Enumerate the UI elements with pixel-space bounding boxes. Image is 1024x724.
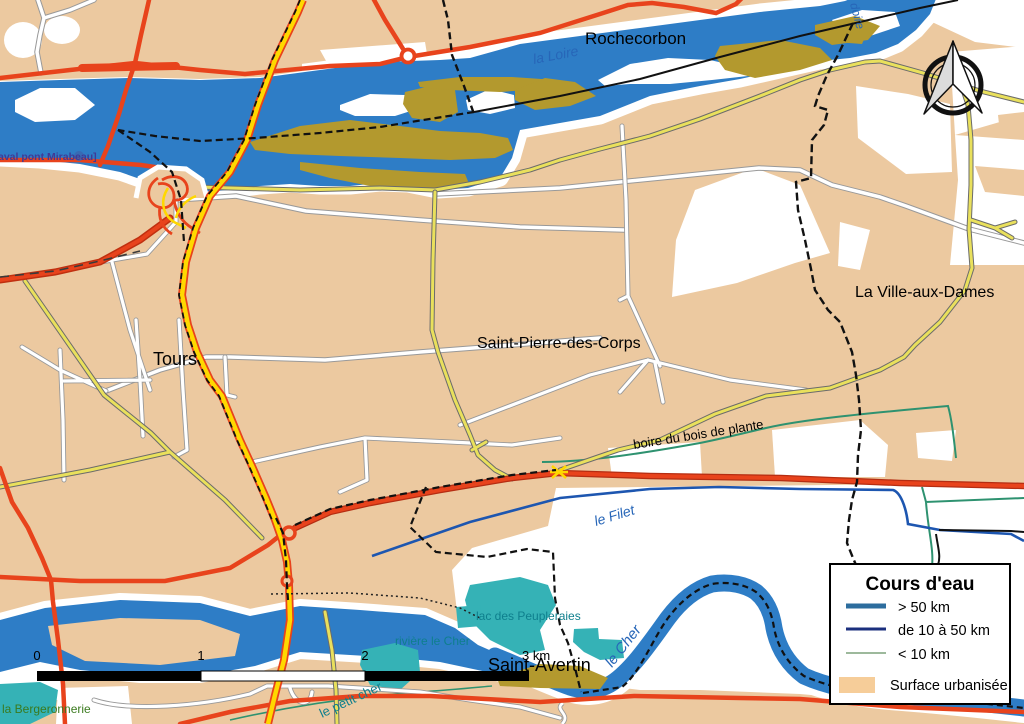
svg-text:Rochecorbon: Rochecorbon <box>585 29 686 48</box>
svg-text:Tours: Tours <box>153 349 197 369</box>
svg-text:< 10 km: < 10 km <box>898 647 950 663</box>
svg-text:Cours d'eau: Cours d'eau <box>865 574 974 595</box>
svg-text:rivière le Cher: rivière le Cher <box>395 634 470 648</box>
svg-text:2: 2 <box>361 648 368 663</box>
svg-text:de 10 à 50 km: de 10 à 50 km <box>898 623 990 639</box>
svg-text:Surface urbanisée: Surface urbanisée <box>890 678 1008 694</box>
svg-text:Saint-Pierre-des-Corps: Saint-Pierre-des-Corps <box>477 335 641 352</box>
svg-text:3 km: 3 km <box>522 648 550 663</box>
svg-text:0: 0 <box>33 648 40 663</box>
svg-text:La Ville-aux-Dames: La Ville-aux-Dames <box>855 284 994 301</box>
svg-text:lac des Peupleraies: lac des Peupleraies <box>476 609 581 623</box>
svg-text:la Bergeronnerie: la Bergeronnerie <box>2 702 91 716</box>
svg-text:1: 1 <box>197 648 204 663</box>
svg-text:> 50 km: > 50 km <box>898 600 950 616</box>
svg-text:aval pont Mirabeau]: aval pont Mirabeau] <box>0 151 97 163</box>
